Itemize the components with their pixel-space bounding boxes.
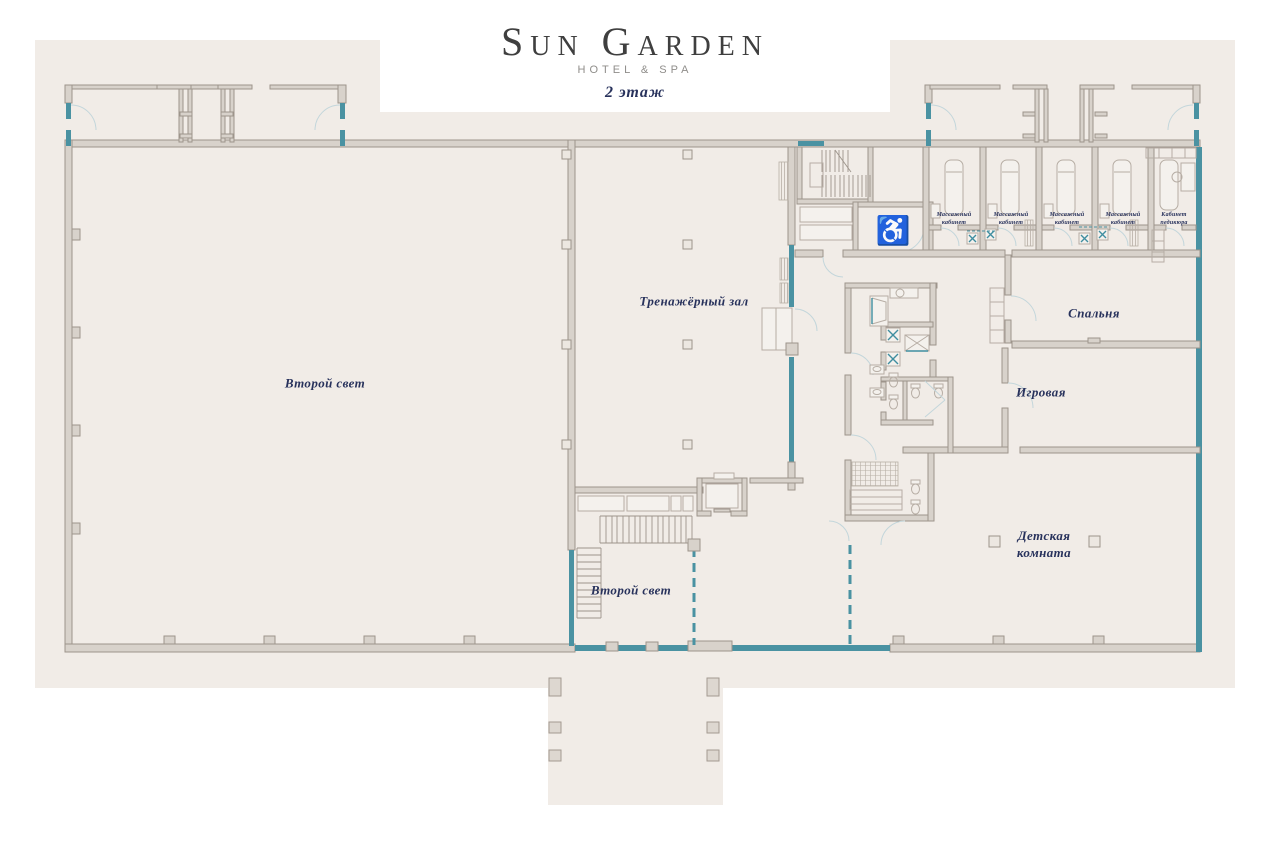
floor-plan-svg: ♿ xyxy=(0,0,1270,842)
room-label-massage-2: Массажный кабинет xyxy=(988,211,1034,227)
title-block: Sun Garden HOTEL & SPA 2 этаж xyxy=(385,22,885,102)
brand-logo: Sun Garden xyxy=(385,22,885,62)
room-label-second-light-main: Второй свет xyxy=(225,376,425,393)
brand-tagline: HOTEL & SPA xyxy=(385,64,885,76)
room-label-pedicure: Кабинет педикюра xyxy=(1152,211,1196,227)
room-label-bedroom: Спальня xyxy=(1024,306,1164,323)
floor-label: 2 этаж xyxy=(385,84,885,102)
room-label-massage-4: Массажный кабинет xyxy=(1100,211,1146,227)
room-label-massage-1: Массажный кабинет xyxy=(931,211,977,227)
plan-background xyxy=(35,40,1235,805)
room-label-massage-3: Массажный кабинет xyxy=(1044,211,1090,227)
room-label-kids-room: Детская комната xyxy=(994,528,1094,562)
room-label-gym: Тренажёрный зал xyxy=(634,294,754,311)
wheelchair-accessible-icon: ♿ xyxy=(876,214,911,247)
floor-plan-page: Sun Garden HOTEL & SPA 2 этаж xyxy=(0,0,1270,842)
room-label-playroom: Игровая xyxy=(971,385,1111,402)
room-label-second-light-lower: Второй свет xyxy=(531,583,731,600)
